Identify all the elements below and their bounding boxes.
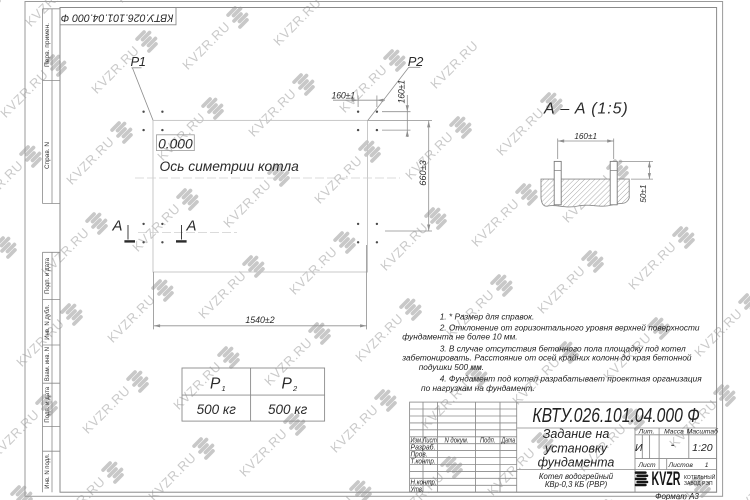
svg-text:KVZR.RU: KVZR.RU xyxy=(88,43,142,97)
svg-text:2: 2 xyxy=(292,384,298,393)
svg-text:A – A (1:5): A – A (1:5) xyxy=(543,101,629,118)
svg-text:KVZR.RU: KVZR.RU xyxy=(493,105,547,159)
svg-text:50±1: 50±1 xyxy=(639,185,648,203)
svg-text:Дата: Дата xyxy=(501,438,515,445)
svg-text:KVZR.RU: KVZR.RU xyxy=(13,316,67,370)
svg-text:P: P xyxy=(282,376,293,393)
svg-text:KVZR.RU: KVZR.RU xyxy=(220,177,274,231)
svg-text:Инв. N дубл.: Инв. N дубл. xyxy=(43,305,51,340)
svg-text:KVZR.RU: KVZR.RU xyxy=(402,129,456,183)
svg-text:KVZR.RU: KVZR.RU xyxy=(427,38,481,92)
svg-text:Н.контр.: Н.контр. xyxy=(411,479,437,486)
svg-text:1. * Размер для справок.: 1. * Размер для справок. xyxy=(440,312,535,322)
svg-text:500 кг: 500 кг xyxy=(268,402,308,417)
svg-text:P1: P1 xyxy=(131,54,146,69)
svg-text:KVZR.RU: KVZR.RU xyxy=(236,426,290,480)
svg-text:Разраб.: Разраб. xyxy=(411,444,436,452)
svg-text:КОТЕЛЬНЫЙ: КОТЕЛЬНЫЙ xyxy=(684,473,716,481)
svg-text:500 кг: 500 кг xyxy=(197,402,237,417)
svg-text:Ось симетрии котла: Ось симетрии котла xyxy=(160,159,300,174)
svg-text:P2: P2 xyxy=(408,54,424,69)
svg-text:KVZR.RU: KVZR.RU xyxy=(129,201,183,255)
svg-text:KVZR.RU: KVZR.RU xyxy=(0,249,1,303)
svg-text:ЗАВОД РЭП: ЗАВОД РЭП xyxy=(684,481,713,487)
svg-text:660±3: 660±3 xyxy=(418,159,428,185)
svg-text:160±1: 160±1 xyxy=(332,91,356,101)
svg-text:Подп. и дата: Подп. и дата xyxy=(44,386,51,422)
svg-text:1540±2: 1540±2 xyxy=(245,315,274,325)
svg-text:Взам. инв. N: Взам. инв. N xyxy=(44,347,51,381)
svg-text:Задание на: Задание на xyxy=(543,427,610,441)
svg-text:A: A xyxy=(186,218,197,235)
svg-text:фундамента: фундамента xyxy=(538,456,615,470)
svg-text:подушки 500 мм.: подушки 500 мм. xyxy=(419,362,484,372)
svg-text:KVZR.RU: KVZR.RU xyxy=(79,383,133,437)
svg-text:KVZR.RU: KVZR.RU xyxy=(336,62,390,116)
svg-text:И: И xyxy=(635,442,643,454)
svg-text:Пров.: Пров. xyxy=(411,452,428,459)
svg-text:KVZR.RU: KVZR.RU xyxy=(195,268,249,322)
svg-text:KVZR.RU: KVZR.RU xyxy=(534,263,588,317)
svg-text:KVZR.RU: KVZR.RU xyxy=(245,86,299,140)
svg-text:фундамента не более 10 мм.: фундамента не более 10 мм. xyxy=(402,332,517,342)
svg-text:Изм.Лист: Изм.Лист xyxy=(411,438,438,445)
svg-text:KVZR.RU: KVZR.RU xyxy=(327,402,381,456)
svg-text:P: P xyxy=(210,376,221,393)
svg-text:1: 1 xyxy=(705,462,709,469)
svg-text:Масса: Масса xyxy=(664,428,684,435)
svg-text:0.000: 0.000 xyxy=(158,136,193,151)
svg-text:N докум.: N докум. xyxy=(445,437,469,445)
svg-text:Масштаб: Масштаб xyxy=(687,427,718,435)
svg-text:160±1: 160±1 xyxy=(574,132,597,141)
svg-text:Подп.: Подп. xyxy=(480,437,496,445)
svg-text:KVZR.RU: KVZR.RU xyxy=(377,220,431,274)
svg-text:KVZR.RU: KVZR.RU xyxy=(732,464,750,500)
svg-text:160±1: 160±1 xyxy=(397,80,407,104)
svg-text:КВТУ.026.101.04.000 Ф: КВТУ.026.101.04.000 Ф xyxy=(532,404,699,426)
svg-text:Лит.: Лит. xyxy=(638,428,655,435)
svg-text:KVZR.RU: KVZR.RU xyxy=(352,311,406,365)
svg-text:Инв. N подл.: Инв. N подл. xyxy=(44,454,51,489)
svg-text:Формат А3: Формат А3 xyxy=(655,492,699,500)
svg-text:1: 1 xyxy=(222,384,226,393)
svg-text:Справ. N: Справ. N xyxy=(44,142,51,169)
svg-text:A: A xyxy=(112,218,123,235)
svg-text:КВТУ.026.101.04.000 Ф: КВТУ.026.101.04.000 Ф xyxy=(61,11,174,23)
svg-text:KVZR.RU: KVZR.RU xyxy=(179,19,233,73)
svg-text:KVZR.RU: KVZR.RU xyxy=(468,196,522,250)
svg-text:Перв. примен.: Перв. примен. xyxy=(44,23,51,67)
svg-text:KVZR.RU: KVZR.RU xyxy=(625,239,679,293)
svg-text:1:20: 1:20 xyxy=(692,442,713,454)
svg-text:KVZR.RU: KVZR.RU xyxy=(113,0,167,6)
svg-text:KVZR.RU: KVZR.RU xyxy=(0,158,26,212)
svg-text:Утв.: Утв. xyxy=(410,486,424,493)
svg-text:KVZR.RU: KVZR.RU xyxy=(0,407,42,461)
svg-text:Т.контр.: Т.контр. xyxy=(411,459,436,466)
svg-text:KVZR.RU: KVZR.RU xyxy=(63,134,117,188)
svg-text:KVZR.RU: KVZR.RU xyxy=(0,67,51,121)
svg-text:KVZR: KVZR xyxy=(652,469,681,490)
svg-text:KVZR.RU: KVZR.RU xyxy=(691,306,745,360)
svg-text:KVZR.RU: KVZR.RU xyxy=(104,292,158,346)
svg-text:по нагрузкам на фундамент.: по нагрузкам на фундамент. xyxy=(421,383,535,393)
svg-text:установку: установку xyxy=(544,442,608,456)
svg-text:KVZR.RU: KVZR.RU xyxy=(311,153,365,207)
svg-text:Подп. и дата: Подп. и дата xyxy=(44,258,51,294)
svg-text:KVZR.RU: KVZR.RU xyxy=(286,244,340,298)
svg-text:КВр-0,3 КБ (РВР): КВр-0,3 КБ (РВР) xyxy=(545,480,608,489)
